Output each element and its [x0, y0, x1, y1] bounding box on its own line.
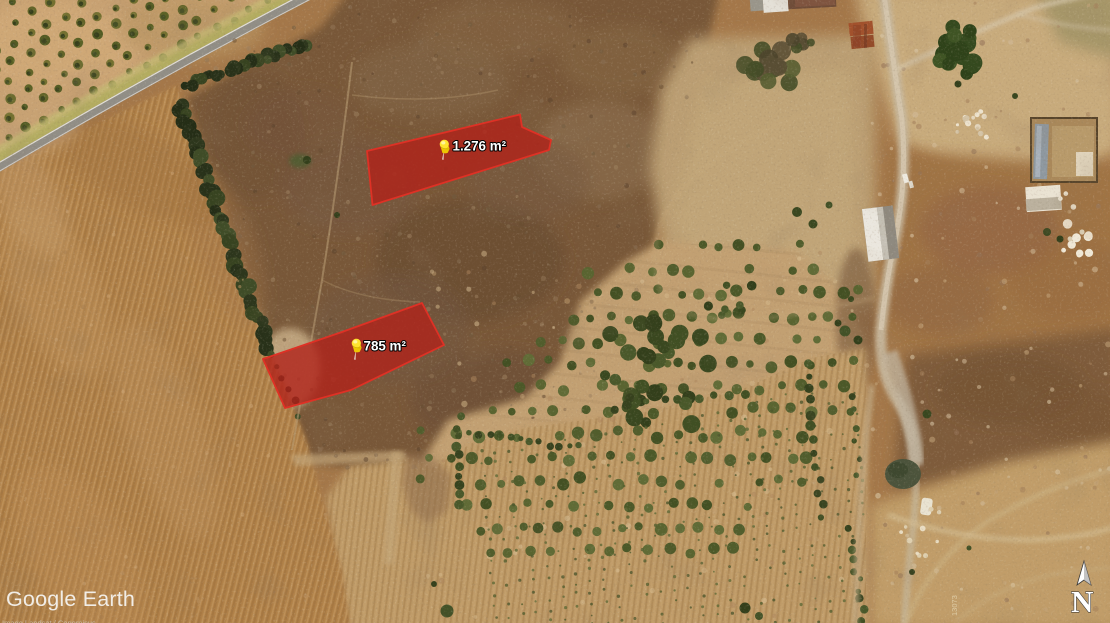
svg-text:785 m²: 785 m² — [364, 339, 407, 354]
svg-text:Google Earth: Google Earth — [6, 587, 135, 611]
svg-text:Image Landsat / Copernicus: Image Landsat / Copernicus — [2, 619, 96, 623]
svg-text:13073: 13073 — [950, 595, 959, 616]
svg-text:N: N — [1071, 584, 1093, 619]
svg-text:1.276 m²: 1.276 m² — [453, 139, 507, 154]
